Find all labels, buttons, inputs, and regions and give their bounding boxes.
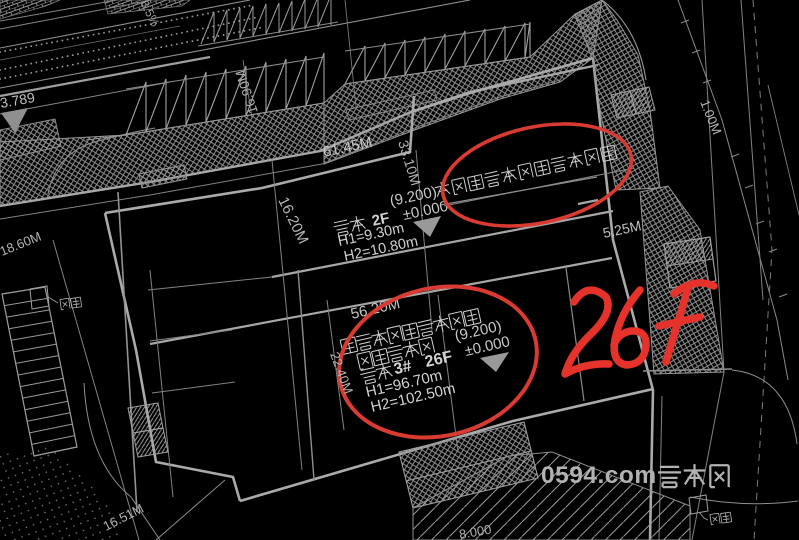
svg-text:0594.com: 0594.com — [541, 462, 657, 489]
